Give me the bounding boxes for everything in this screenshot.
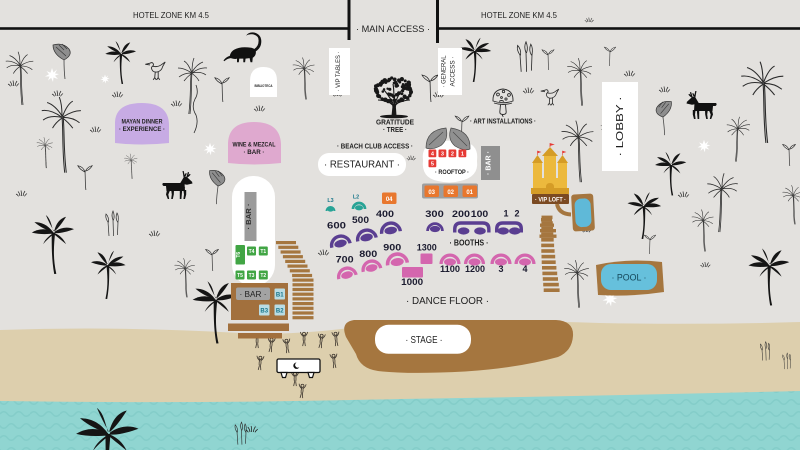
svg-text:L2: L2 <box>353 195 359 201</box>
svg-text:4: 4 <box>522 264 527 274</box>
svg-text:04: 04 <box>386 197 393 203</box>
svg-text:1100: 1100 <box>440 264 460 274</box>
svg-text:5: 5 <box>431 162 434 168</box>
svg-text:T3: T3 <box>249 273 255 279</box>
svg-text:· ART INSTALLATIONS ·: · ART INSTALLATIONS · <box>470 117 536 126</box>
svg-text:3: 3 <box>441 152 444 158</box>
svg-text:· BAR ·: · BAR · <box>244 149 265 156</box>
svg-text:L3: L3 <box>327 198 333 204</box>
svg-text:1300: 1300 <box>417 243 437 253</box>
svg-text:MAYAN DINNER: MAYAN DINNER <box>122 119 163 126</box>
svg-text:T1: T1 <box>260 249 266 255</box>
svg-text:· VIP LOFT ·: · VIP LOFT · <box>535 196 566 203</box>
svg-text:WINE & MEZCAL: WINE & MEZCAL <box>233 142 276 149</box>
svg-text:1: 1 <box>503 209 508 219</box>
svg-text:· LOBBY ·: · LOBBY · <box>615 97 626 157</box>
svg-text:1: 1 <box>461 152 464 158</box>
svg-text:900: 900 <box>383 243 401 253</box>
svg-text:800: 800 <box>359 249 377 259</box>
svg-text:ACCESS ·: ACCESS · <box>450 57 457 87</box>
svg-text:700: 700 <box>336 255 354 265</box>
svg-text:· EXPERIENCE ·: · EXPERIENCE · <box>119 126 165 133</box>
svg-text:B3: B3 <box>260 309 268 315</box>
svg-text:· DANCE FLOOR ·: · DANCE FLOOR · <box>406 296 489 307</box>
svg-text:T6: T6 <box>236 252 242 258</box>
svg-text:HOTEL ZONE KM 4.5: HOTEL ZONE KM 4.5 <box>481 10 557 20</box>
svg-text:· TREE ·: · TREE · <box>383 127 407 134</box>
svg-text:· STAGE ·: · STAGE · <box>406 335 443 346</box>
svg-text:· BAR ·: · BAR · <box>246 204 253 230</box>
svg-text:· BAR ·: · BAR · <box>240 290 267 299</box>
svg-text:· BAR ·: · BAR · <box>486 151 493 175</box>
svg-text:2: 2 <box>451 152 454 158</box>
svg-text:BIBLIOTECA: BIBLIOTECA <box>255 84 273 88</box>
svg-text:· RESTAURANT ·: · RESTAURANT · <box>324 160 400 171</box>
svg-text:T2: T2 <box>260 273 266 279</box>
svg-text:100: 100 <box>471 209 489 219</box>
svg-text:02: 02 <box>447 190 454 196</box>
svg-text:HOTEL ZONE KM 4.5: HOTEL ZONE KM 4.5 <box>133 10 209 20</box>
svg-text:· POOL ·: · POOL · <box>612 272 647 283</box>
svg-text:B2: B2 <box>276 309 284 315</box>
svg-text:600: 600 <box>327 221 346 231</box>
svg-text:· BOOTHS ·: · BOOTHS · <box>450 239 489 248</box>
svg-text:· VIP TABLES ·: · VIP TABLES · <box>335 52 342 92</box>
svg-text:200: 200 <box>452 209 470 219</box>
svg-text:1200: 1200 <box>465 264 485 274</box>
svg-text:3: 3 <box>498 264 503 274</box>
svg-text:T4: T4 <box>249 249 255 255</box>
svg-text:01: 01 <box>466 190 473 196</box>
svg-text:· BEACH CLUB ACCESS ·: · BEACH CLUB ACCESS · <box>337 142 413 151</box>
svg-text:B1: B1 <box>276 293 284 299</box>
svg-text:· MAIN ACCESS ·: · MAIN ACCESS · <box>356 24 430 35</box>
svg-text:400: 400 <box>376 209 394 219</box>
svg-text:T5: T5 <box>237 273 243 279</box>
svg-text:500: 500 <box>352 215 369 225</box>
svg-text:· ROOFTOP ·: · ROOFTOP · <box>435 169 469 176</box>
svg-text:GRATITUDE: GRATITUDE <box>376 120 414 127</box>
svg-text:03: 03 <box>428 190 435 196</box>
svg-text:1000: 1000 <box>401 277 423 287</box>
svg-text:300: 300 <box>425 209 444 219</box>
svg-text:· GENERAL: · GENERAL <box>441 55 448 87</box>
svg-text:2: 2 <box>514 209 519 219</box>
